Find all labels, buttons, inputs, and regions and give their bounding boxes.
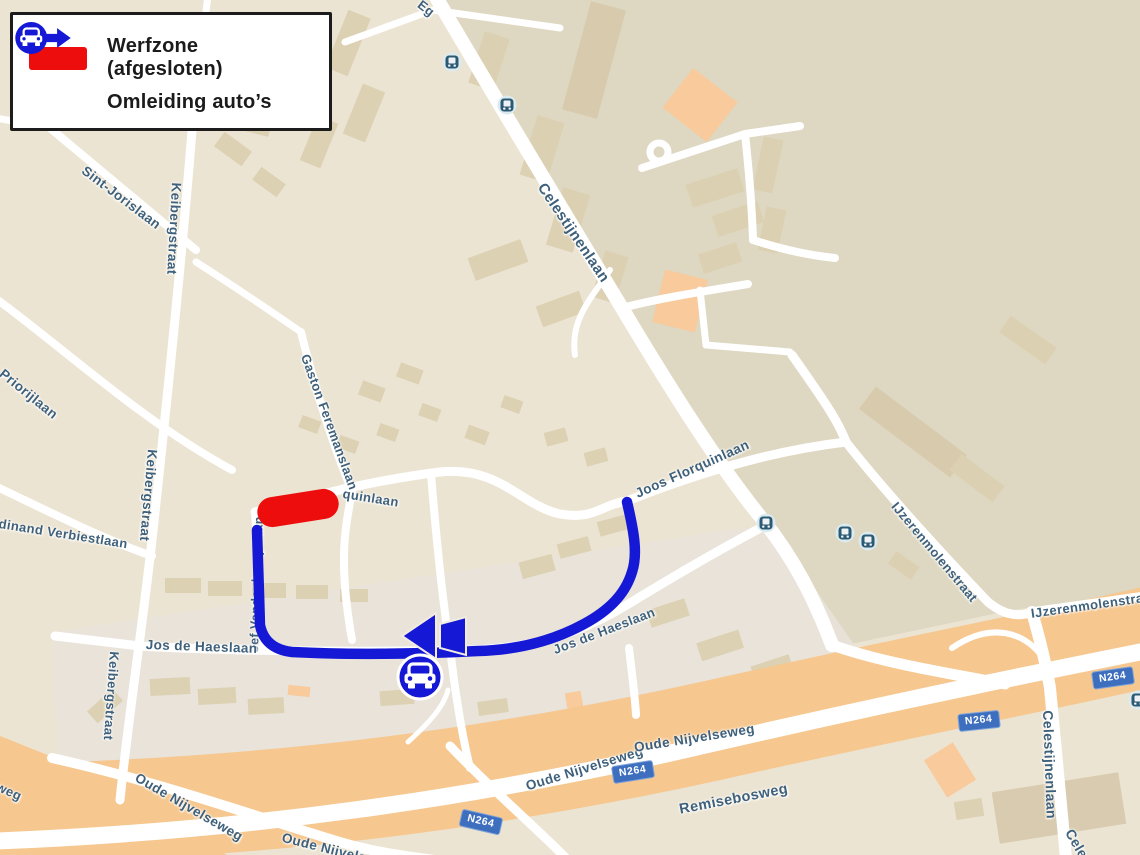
- street-label: Eg: [415, 0, 438, 20]
- legend-item-omleiding: Omleiding auto’s: [29, 91, 317, 114]
- street-label: IJzerenmolenstraat: [889, 499, 981, 605]
- street-label: Gaston Feremanslaan: [298, 352, 361, 492]
- street-label: Oude Nijvelseweg: [133, 770, 246, 844]
- legend: Werfzone (afgesloten) Omleiding auto’s: [10, 12, 332, 131]
- road-badge-n264: N264: [459, 809, 503, 835]
- street-label: Celestijnenlaan: [534, 180, 613, 286]
- street-label: weg: [0, 779, 24, 803]
- street-label: Priorijlaan: [0, 366, 61, 422]
- street-label: Celest: [1062, 826, 1098, 855]
- street-label: Jos de Haeslaan: [145, 637, 257, 656]
- legend-item-label: Omleiding auto’s: [107, 91, 272, 114]
- street-label: dinand Verbiestlaan: [0, 516, 129, 551]
- street-label: Sint-Jorislaan: [79, 163, 164, 232]
- street-label: Jos de Haeslaan: [551, 604, 657, 657]
- street-label: quinlaan: [342, 486, 400, 510]
- street-label: Keibergstraat: [137, 449, 160, 542]
- street-label: Jef Vandenbemptlaan: [247, 516, 266, 653]
- street-label: Oude Nijvelseweg: [280, 830, 402, 855]
- street-label: Keibergstraat: [101, 651, 122, 741]
- road-badge-n264: N264: [1091, 666, 1135, 689]
- detour-map: Eg Sint-Jorislaan Keibergstraat Priorijl…: [0, 0, 1140, 855]
- street-label: Celestijnenlaan: [1040, 710, 1060, 819]
- street-label: Joos Florquinlaan: [633, 437, 752, 501]
- legend-item-label: Werfzone (afgesloten): [107, 35, 317, 81]
- street-label: Remisebosweg: [678, 781, 789, 818]
- street-label: Oude Nijvelseweg: [633, 721, 756, 755]
- street-label: IJzerenmolenstraat: [1030, 589, 1140, 621]
- road-badge-n264: N264: [957, 710, 1000, 732]
- street-label: Keibergstraat: [164, 182, 184, 275]
